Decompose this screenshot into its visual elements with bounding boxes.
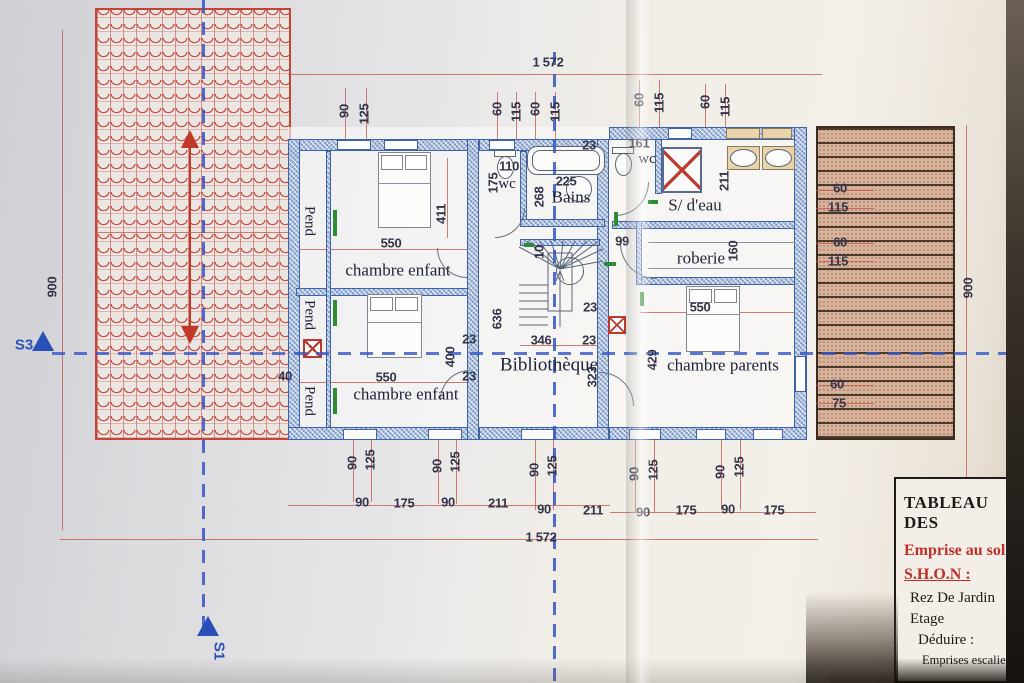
section-triangle-s1 xyxy=(197,616,219,636)
dimension-line xyxy=(721,440,722,510)
dimension-line xyxy=(639,80,640,127)
dimension-label: 90 xyxy=(441,496,455,509)
dimension-label: 90 xyxy=(714,465,727,479)
window xyxy=(384,140,418,150)
jamb-mark xyxy=(648,200,658,204)
pillow xyxy=(689,289,712,303)
section-marker-s3: S3 xyxy=(15,338,33,353)
dimension-line xyxy=(62,30,63,530)
bed-line xyxy=(367,322,422,323)
jamb-mark xyxy=(333,388,337,414)
jamb-mark xyxy=(333,210,337,236)
dimension-line xyxy=(456,440,457,504)
window xyxy=(762,128,792,139)
dimension-line xyxy=(353,440,354,502)
section-axis-vertical-1 xyxy=(202,0,205,628)
wall-segment xyxy=(794,127,807,440)
wall-segment xyxy=(655,139,662,194)
jamb-mark xyxy=(640,292,644,306)
duct-symbol xyxy=(608,316,626,334)
section-axis-horizontal xyxy=(52,352,1010,355)
dimension-line xyxy=(816,208,874,209)
dimension-line xyxy=(438,440,439,504)
dimension-label: 175 xyxy=(764,504,785,517)
dimension-label: 211 xyxy=(488,497,508,510)
dimension-label: 900 xyxy=(962,278,975,299)
dimension-line xyxy=(60,539,818,540)
jamb-mark xyxy=(604,262,616,266)
jamb-mark xyxy=(333,300,337,326)
dimension-label: 175 xyxy=(676,504,697,517)
washbasin xyxy=(566,176,592,202)
window xyxy=(428,429,462,440)
tableau-des-surfaces: TABLEAU DES Emprise au sol S.H.O.N : Rez… xyxy=(894,477,1024,683)
dimension-line xyxy=(535,440,536,510)
tiled-roof-area xyxy=(95,8,291,440)
window xyxy=(795,356,806,392)
dimension-line xyxy=(654,440,655,513)
window xyxy=(753,429,783,440)
dimension-label: 900 xyxy=(46,277,59,298)
dimension-label: 125 xyxy=(647,460,660,481)
dimension-line xyxy=(816,190,874,191)
pillow xyxy=(381,155,403,170)
dimension-label: 90 xyxy=(721,503,735,516)
dimension-label: 90 xyxy=(338,104,351,118)
window xyxy=(629,429,661,440)
wall-segment xyxy=(326,151,331,428)
dimension-label: 90 xyxy=(431,459,444,473)
section-marker-s1: S1 xyxy=(212,642,227,660)
dimension-line xyxy=(659,80,660,127)
dimension-line xyxy=(816,403,874,404)
dimension-line xyxy=(520,345,604,346)
shadow xyxy=(806,592,898,683)
dimension-label: 90 xyxy=(355,496,369,509)
pillow xyxy=(395,297,418,311)
section-axis-vertical-2 xyxy=(553,52,556,683)
window xyxy=(521,429,555,440)
tableau-emprise: Emprise au sol xyxy=(904,542,1022,560)
dimension-line xyxy=(497,92,498,139)
window xyxy=(726,128,760,139)
window xyxy=(696,429,726,440)
shelf-line xyxy=(648,242,796,243)
dimension-label: 90 xyxy=(528,463,541,477)
shower-symbol xyxy=(662,147,702,193)
dimension-line xyxy=(516,92,517,139)
dimension-line xyxy=(816,243,874,244)
sink xyxy=(765,149,792,167)
window xyxy=(337,140,371,150)
dimension-label: 125 xyxy=(358,104,371,125)
tableau-title: TABLEAU DES xyxy=(904,493,1022,533)
dimension-line xyxy=(816,385,874,386)
bed-line xyxy=(686,314,740,315)
dimension-line xyxy=(288,505,610,506)
bed-line xyxy=(378,183,431,184)
dimension-line xyxy=(610,512,816,513)
bathtub-inner xyxy=(532,150,600,171)
dimension-line xyxy=(725,84,726,127)
dimension-label: 125 xyxy=(449,452,462,473)
dimension-line xyxy=(447,158,448,238)
dimension-line xyxy=(95,232,291,233)
arrow-up-icon xyxy=(181,130,199,148)
photo-edge xyxy=(1006,0,1024,683)
dimension-label: 90 xyxy=(628,467,641,481)
dimension-line xyxy=(740,440,741,510)
tableau-shon: S.H.O.N : xyxy=(904,566,1022,584)
dimension-line xyxy=(635,440,636,513)
shelf-line xyxy=(648,268,796,269)
toilet xyxy=(615,153,632,176)
slatted-terrace-area xyxy=(816,126,955,440)
wall-segment xyxy=(638,277,795,285)
jamb-mark xyxy=(614,212,618,226)
window xyxy=(668,128,692,139)
dimension-line xyxy=(345,88,346,139)
pillow xyxy=(370,297,393,311)
dimension-label: 125 xyxy=(733,457,746,478)
dimension-line xyxy=(366,88,367,139)
staircase xyxy=(517,239,605,331)
dimension-label: 1 572 xyxy=(532,56,563,69)
window xyxy=(343,429,377,440)
toilet xyxy=(497,156,514,179)
roof-slope-arrow xyxy=(189,146,191,328)
dimension-line xyxy=(705,84,706,127)
dimension-line xyxy=(371,440,372,502)
dimension-line xyxy=(816,261,874,262)
shadow xyxy=(0,657,830,683)
dimension-line xyxy=(966,125,967,531)
dimension-label: 125 xyxy=(364,450,377,471)
dimension-label: 175 xyxy=(394,497,415,510)
dimension-line xyxy=(535,92,536,139)
arrow-down-icon xyxy=(181,326,199,344)
window xyxy=(489,140,515,150)
jamb-mark xyxy=(524,243,534,247)
dimension-label: 125 xyxy=(546,456,559,477)
dimension-label: 1 572 xyxy=(525,531,556,544)
sink xyxy=(730,149,757,167)
duct-symbol xyxy=(303,339,322,358)
pillow xyxy=(714,289,737,303)
shadow xyxy=(894,658,1024,683)
dimension-label: 90 xyxy=(346,456,359,470)
pillow xyxy=(405,155,427,170)
wall-segment xyxy=(520,219,605,227)
floor-plan-photo: chambre enfantchambre enfantBibliothèque… xyxy=(0,0,1024,683)
section-triangle-s3 xyxy=(32,331,54,351)
